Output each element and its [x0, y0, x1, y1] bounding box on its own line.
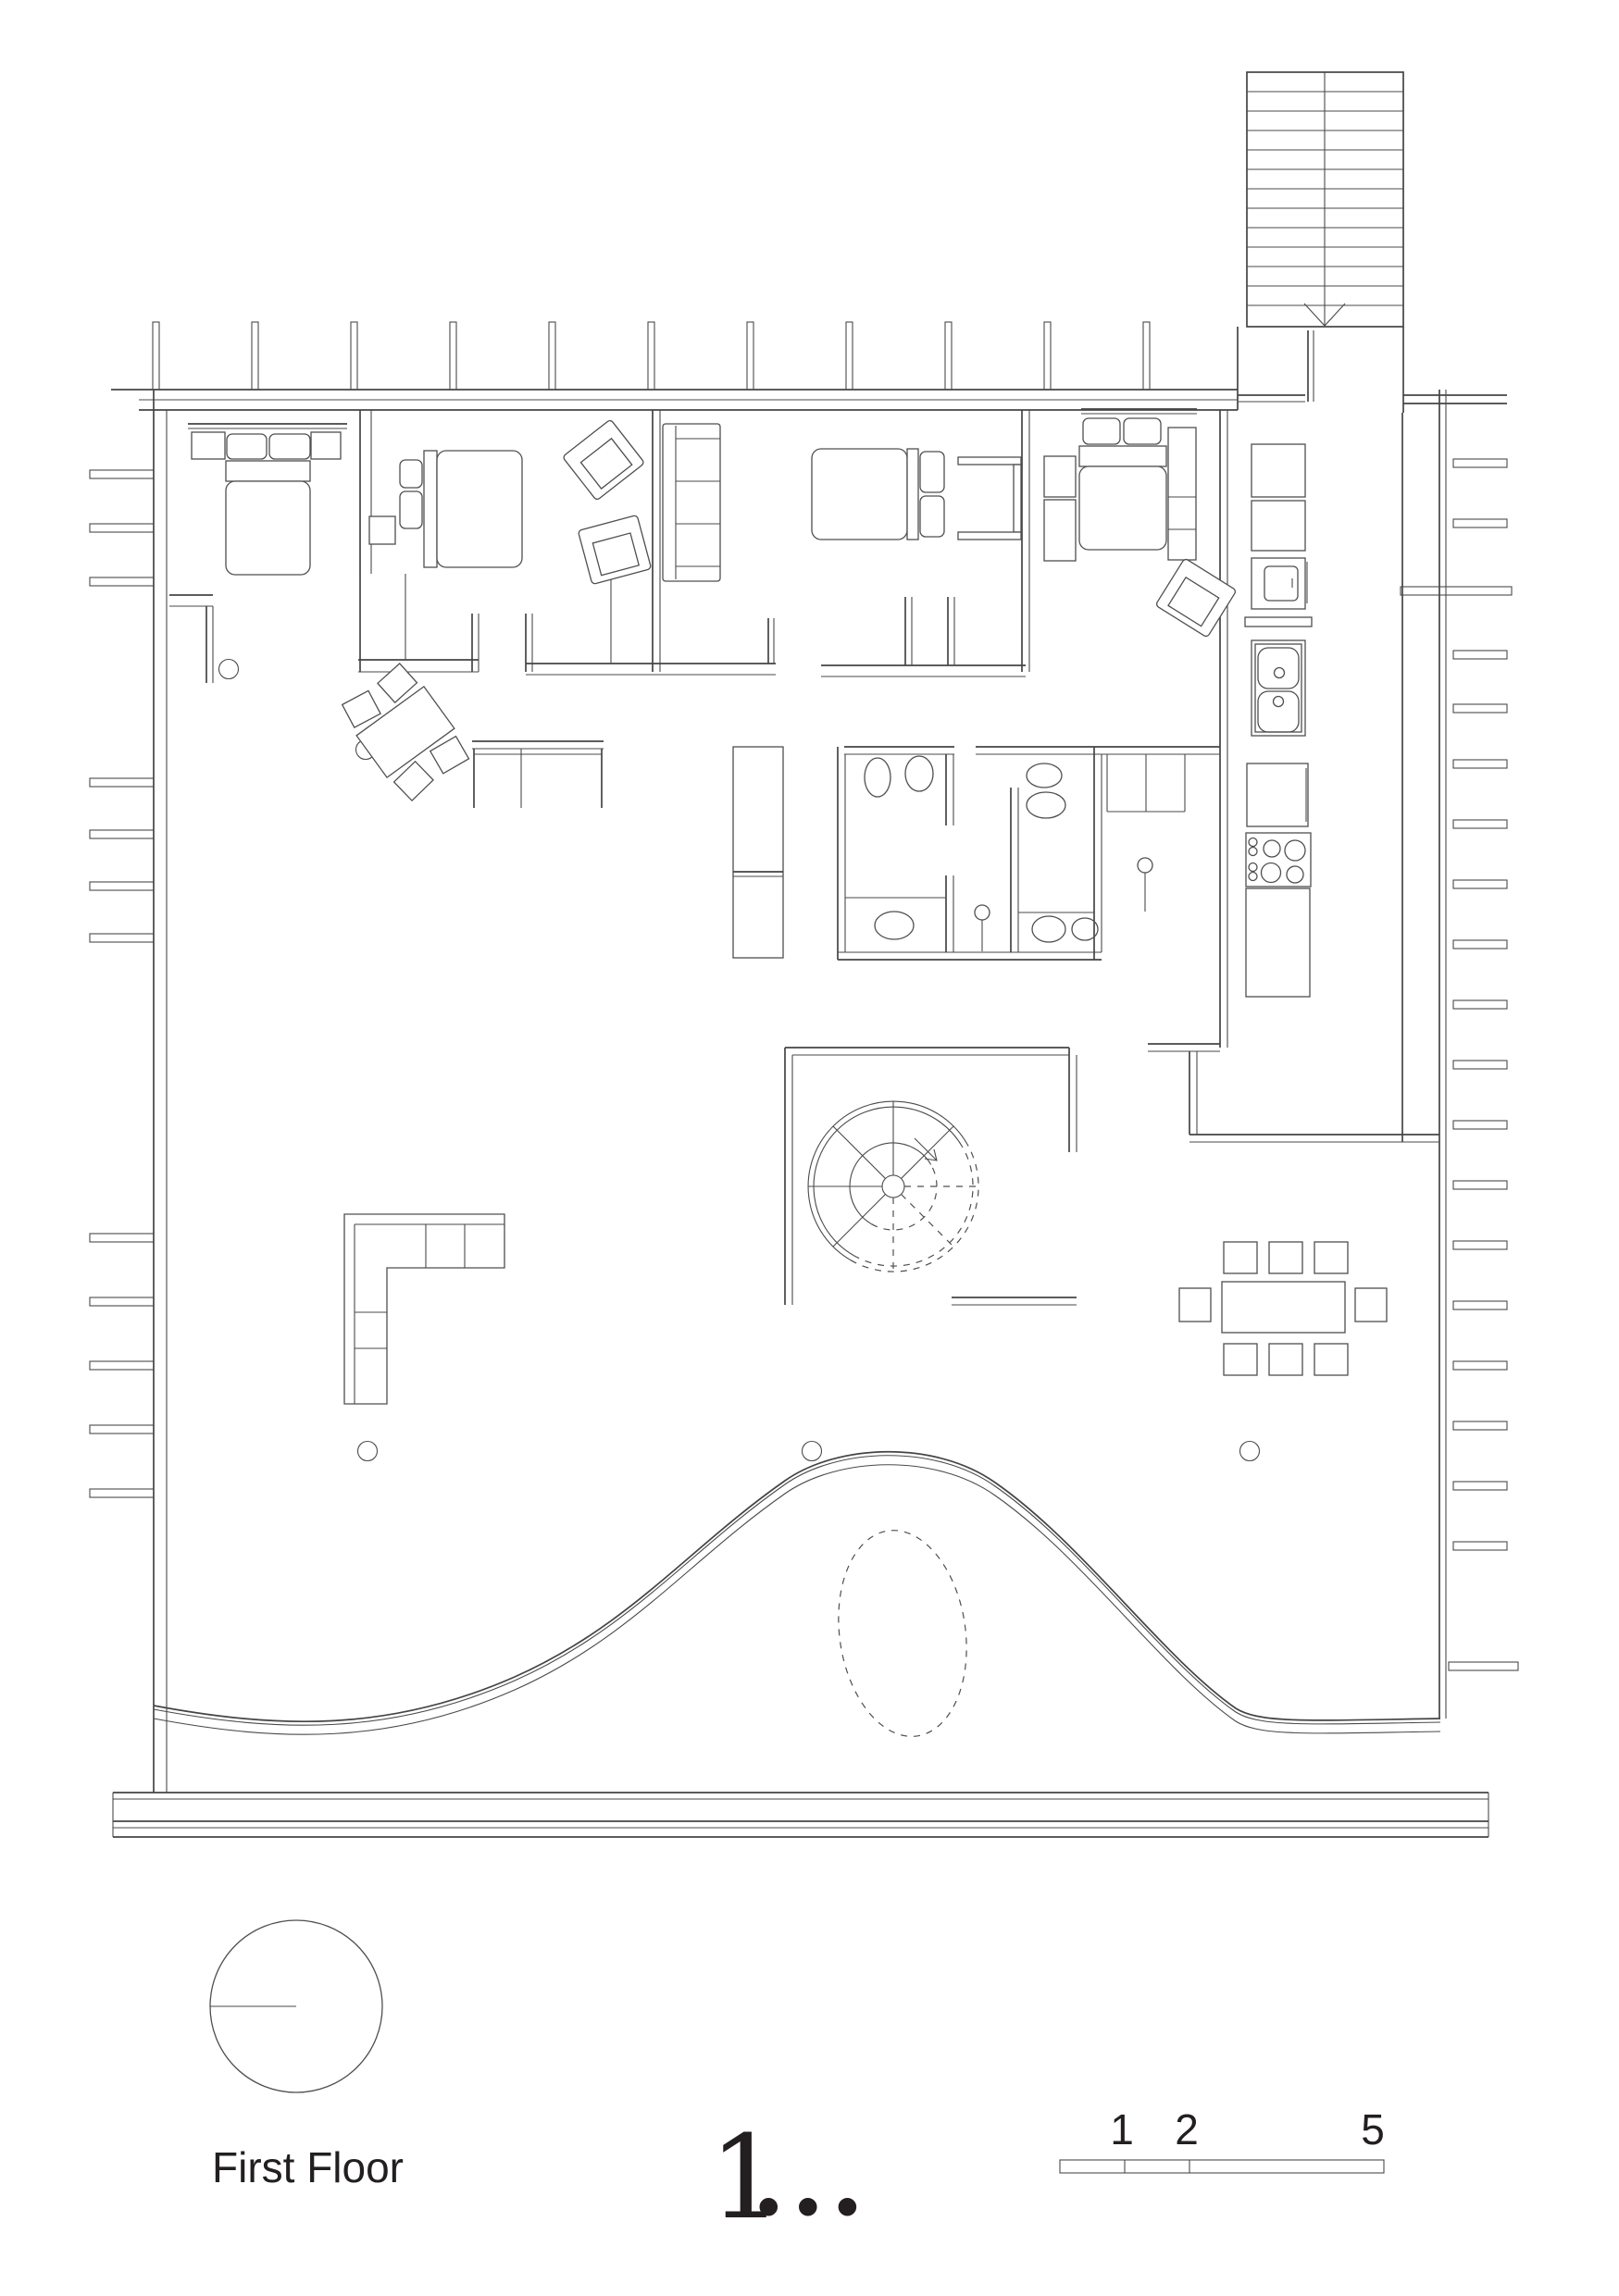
double-bed [437, 451, 522, 567]
pillow [1124, 418, 1161, 444]
hall-closet [733, 747, 783, 958]
double-bed [812, 449, 907, 540]
spiral-staircase [808, 1101, 978, 1272]
chair [1224, 1344, 1257, 1375]
double-bed [226, 481, 310, 575]
pillow [920, 452, 944, 492]
bidet [1027, 792, 1065, 818]
nightstand [1044, 456, 1076, 497]
window-fins-top [153, 322, 1150, 390]
chair [1224, 1242, 1257, 1273]
bedroom-3 [812, 449, 1021, 540]
table-set [337, 660, 474, 805]
kitchen-cabinet [1252, 444, 1305, 497]
chair [1269, 1242, 1302, 1273]
bedroom-2 [369, 451, 522, 567]
fridge [1247, 763, 1308, 826]
nightstand [1044, 500, 1076, 561]
shower-symbol [975, 905, 990, 951]
pillow [400, 460, 422, 488]
cooktop [1246, 833, 1311, 887]
terrace-curved-wall [154, 1452, 1440, 1745]
figure-number-block: 1 ... [709, 2111, 870, 2245]
toilet [875, 912, 914, 939]
dining-set [1179, 1242, 1387, 1375]
scale-bar: 1 2 5 [1060, 2105, 1385, 2173]
tree-dashed-outline [826, 1522, 979, 1745]
toilet [1027, 763, 1062, 788]
window-fins-right [1401, 459, 1518, 1670]
dining-table [1222, 1282, 1345, 1333]
wardrobe [1168, 428, 1196, 560]
wardrobe [958, 457, 1021, 540]
kitchen-cabinet [1252, 501, 1305, 551]
bed-headband [907, 449, 918, 540]
oven [1252, 558, 1307, 609]
chair [1269, 1344, 1302, 1375]
kitchen-counter-divider [1245, 617, 1312, 627]
nightstand [369, 516, 395, 544]
floor-plan-canvas: First Floor 1 ... 1 2 5 [0, 0, 1619, 2296]
shower-symbol [1138, 858, 1152, 873]
bed-headband [226, 461, 310, 481]
spiral-staircase-room [785, 1048, 1077, 1305]
bed-headband [424, 451, 437, 567]
north-symbol [210, 1920, 382, 2092]
armchair [578, 515, 651, 584]
lounge-seating [563, 419, 720, 584]
sofa-three-seat [663, 424, 720, 581]
double-bed [1079, 466, 1166, 550]
scale-tick-label-1: 1 [1110, 2105, 1134, 2153]
chair [1314, 1242, 1348, 1273]
washbasin [905, 756, 933, 791]
toilet [1032, 916, 1065, 942]
living-room [337, 660, 504, 1404]
armchair [1155, 558, 1237, 638]
washbasin [865, 758, 890, 797]
window-fins-left [90, 470, 154, 1497]
pillow [269, 434, 310, 459]
scale-tick-label-5: 5 [1361, 2105, 1385, 2153]
chair [1355, 1288, 1387, 1322]
kitchen-counter [1246, 888, 1310, 997]
pillow [400, 491, 422, 528]
straight-staircase [1238, 72, 1403, 413]
bedroom-4 [1044, 409, 1237, 638]
bathrooms [733, 747, 1220, 960]
l-shaped-sofa [344, 1214, 504, 1404]
pillow [1083, 418, 1120, 444]
chair [1179, 1288, 1211, 1322]
structural-columns [219, 660, 1260, 1461]
pillow [227, 434, 267, 459]
double-sink [1252, 640, 1305, 736]
nightstand [311, 432, 341, 459]
floor-label: First Floor [212, 2143, 404, 2191]
pillow [920, 496, 944, 537]
nightstand [192, 432, 225, 459]
armchair [563, 419, 645, 501]
bed-headband [1079, 446, 1166, 466]
chair [1314, 1344, 1348, 1375]
figure-ellipsis: ... [752, 2123, 870, 2238]
utility-closet [1107, 754, 1185, 912]
bedroom-1 [188, 424, 347, 575]
scale-tick-label-2: 2 [1175, 2105, 1199, 2153]
